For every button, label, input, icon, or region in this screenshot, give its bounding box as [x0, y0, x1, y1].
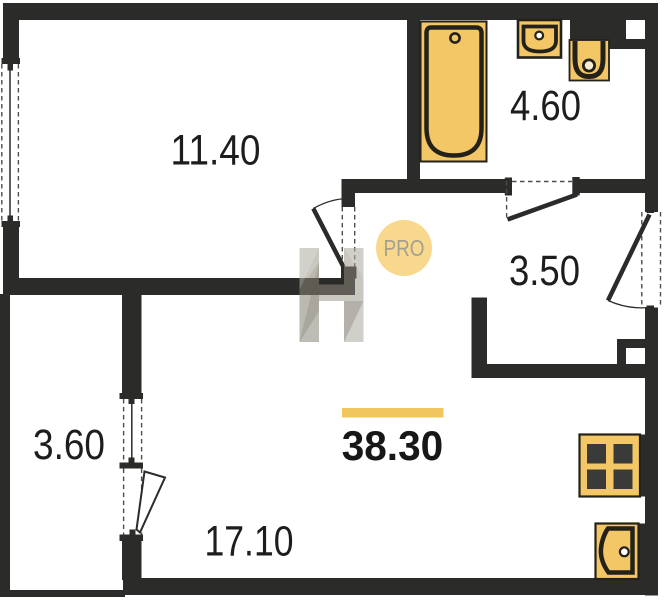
svg-text:17.10: 17.10 [205, 518, 294, 566]
svg-text:4.60: 4.60 [510, 82, 581, 130]
svg-text:3.60: 3.60 [33, 421, 105, 469]
svg-text:11.40: 11.40 [171, 127, 261, 175]
svg-text:3.50: 3.50 [509, 247, 580, 295]
svg-text:38.30: 38.30 [342, 422, 444, 469]
svg-text:PRO: PRO [384, 235, 425, 261]
